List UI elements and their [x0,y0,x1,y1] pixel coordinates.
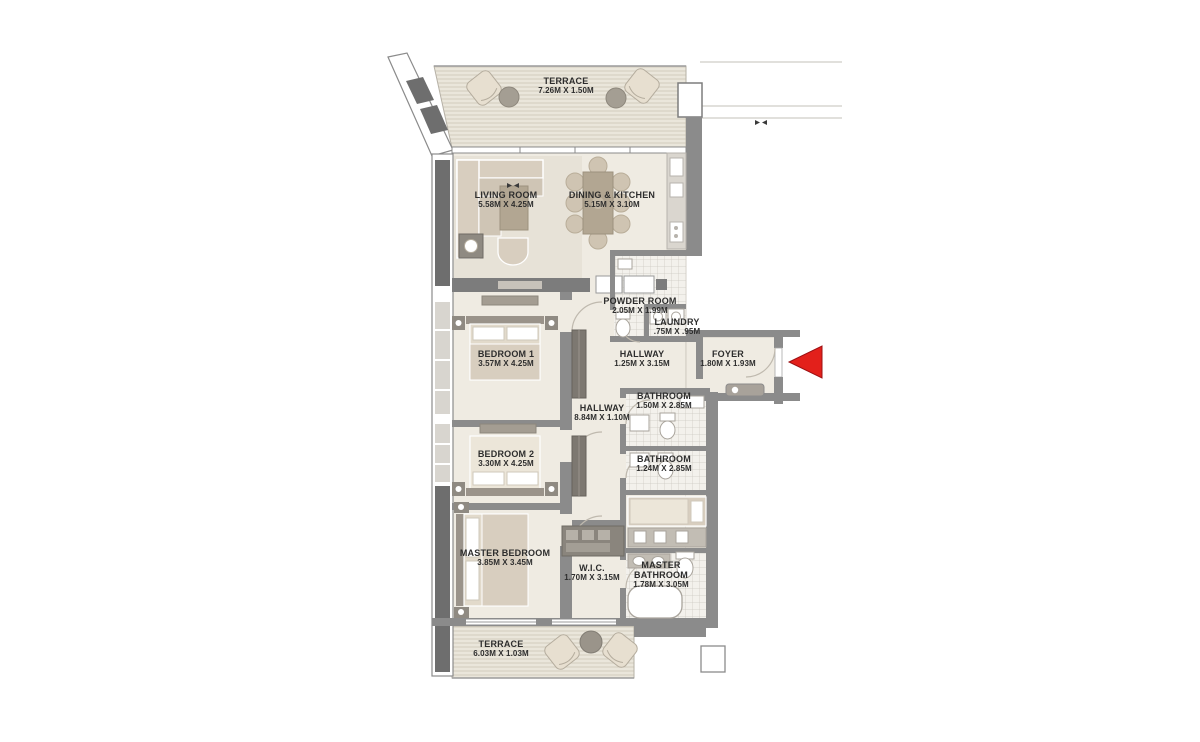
foyer-right-wall-upper [774,337,783,348]
label-master-bathroom: MASTER BATHROOM 1.78M X 3.05M [617,560,705,590]
powder-toilet [616,319,630,337]
label-terrace-bottom: TERRACE 6.03M X 1.03M [473,639,529,659]
kitchen-wall [686,117,702,250]
label-wic: W.I.C. 1.70M X 3.15M [564,563,620,583]
bath1-bath2-divider [626,446,710,451]
label-living-room: LIVING ROOM 5.58M X 4.25M [475,190,538,210]
masterbath-top-wall [626,548,710,553]
left-glazing-terrace [435,626,450,672]
foyer-top-wall [686,330,800,337]
bath2-corridor-divider [626,490,710,495]
left-glazing-master [435,486,450,620]
lamp-side-table [459,234,483,258]
terrace-top-side-table-left [499,87,519,107]
label-terrace-top: TERRACE 7.26M X 1.50M [538,76,594,96]
bathtub [628,586,682,618]
tv [498,281,542,289]
label-bathroom-1: BATHROOM 1.50M X 2.85M [636,391,692,411]
label-dining-kitchen: DINING & KITCHEN 5.15M X 3.10M [569,190,655,210]
terrace-side-wall [634,626,706,637]
kitchen-counter [667,153,686,249]
bed2-master-divider [452,503,572,510]
shaft-column [678,83,702,117]
label-master-bedroom: MASTER BEDROOM 3.85M X 3.45M [460,548,550,568]
floor-plan-canvas: TERRACE 7.26M X 1.50M LIVING ROOM 5.58M … [0,0,1200,742]
label-laundry: LAUNDRY .75M X .95M [654,317,700,337]
bottom-right-column [701,646,725,672]
context-outline-lines [698,62,842,118]
label-bedroom-1: BEDROOM 1 3.57M X 4.25M [478,349,534,369]
floor-plan-drawing [0,0,1200,742]
powder-top-wall [610,250,702,256]
left-window-bed2 [435,424,450,482]
label-bedroom-2: BEDROOM 2 3.30M X 4.25M [478,449,534,469]
daybed [628,497,706,526]
entry-arrow [789,346,822,378]
label-hallway-main: HALLWAY 8.84M X 1.10M [574,403,630,423]
bathroom1-sink [630,415,649,431]
terrace-bottom-table [580,631,602,653]
label-bathroom-2: BATHROOM 1.24M X 2.85M [636,454,692,474]
label-hallway-top: HALLWAY 1.25M X 3.15M [614,349,670,369]
bath-right-wall [706,392,718,628]
label-powder-room: POWDER ROOM 2.05M X 1.99M [603,296,676,316]
wic-shelving [562,526,624,556]
foyer-sideboard [726,384,764,396]
living-window-wall [452,147,686,153]
armchair [498,238,528,265]
entry-door-slot [775,348,782,377]
left-glazing-living [435,160,450,286]
bathroom1-toilet [660,421,675,439]
left-window-bed1 [435,302,450,414]
terrace-top-side-table-right [606,88,626,108]
vanity-counter [628,528,706,547]
label-foyer: FOYER 1.80M X 1.93M [700,349,756,369]
wic-top-wall [572,520,620,526]
powder-sink [618,259,632,269]
